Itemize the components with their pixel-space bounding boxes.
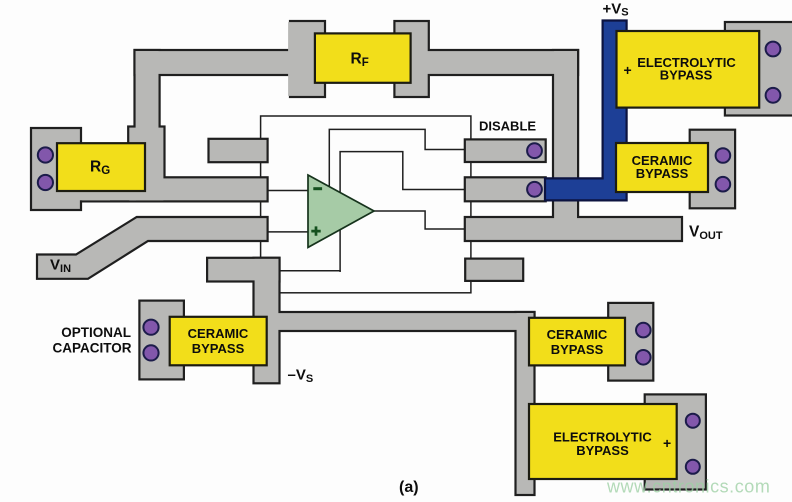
svg-text:CERAMIC: CERAMIC	[188, 326, 249, 341]
svg-text:+: +	[663, 435, 671, 451]
svg-text:BYPASS: BYPASS	[576, 443, 629, 458]
svg-text:CERAMIC: CERAMIC	[547, 327, 608, 342]
svg-text:(a): (a)	[399, 479, 419, 496]
svg-text:+: +	[624, 62, 632, 78]
svg-text:BYPASS: BYPASS	[551, 342, 604, 357]
svg-text:BYPASS: BYPASS	[192, 341, 245, 356]
svg-text:CAPACITOR: CAPACITOR	[52, 341, 131, 356]
svg-text:OPTIONAL: OPTIONAL	[61, 325, 131, 340]
svg-text:www.cntronics.com: www.cntronics.com	[606, 477, 770, 497]
svg-text:BYPASS: BYPASS	[636, 166, 689, 181]
svg-text:BYPASS: BYPASS	[660, 68, 713, 83]
svg-text:DISABLE: DISABLE	[479, 119, 536, 134]
